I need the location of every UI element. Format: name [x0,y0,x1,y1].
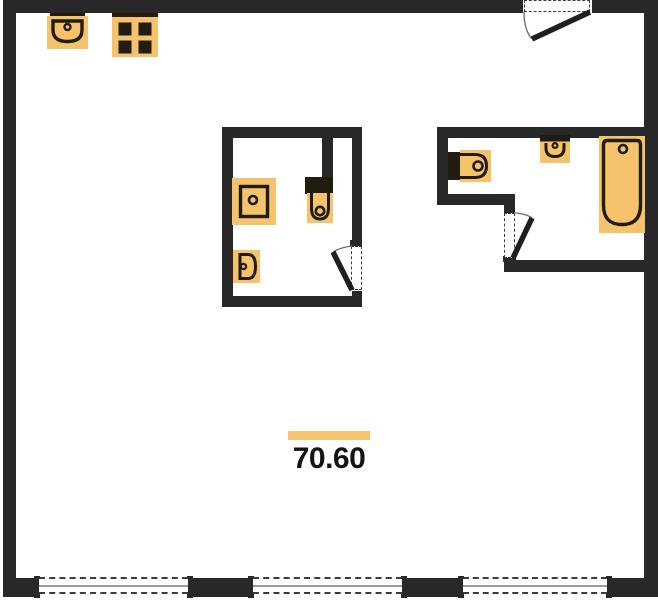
bath1-wall-top [222,127,362,138]
window-icon [253,577,402,594]
toilet-icon [460,150,491,182]
wall-bottom-pier-1 [188,578,253,597]
area-label: 70.60 [278,442,380,476]
floor-plan: 70.60 [0,0,658,600]
wall-bottom-pier-2 [402,578,463,597]
stove-icon [112,17,158,57]
window-glass-line [253,585,402,587]
bath2-wall-mid [437,194,515,205]
bathtub-icon [599,136,645,233]
wall-left [3,0,16,597]
window-glass-line [463,585,607,587]
toilet-icon [307,193,333,223]
bath1-partition [322,138,333,178]
bath1-wall-right-upper [352,127,362,240]
wall-basin-icon [233,250,260,283]
door-swing-icon [500,208,540,264]
wall-right [644,0,658,597]
door-swing-icon [518,0,598,48]
bath1-toilet-cistern [305,177,333,194]
bath1-wall-bottom [222,296,362,307]
door-swing-icon [325,240,365,296]
window-icon [463,577,607,594]
window-glass-line [39,585,188,587]
kitchen-sink-icon [47,16,88,49]
shower-tray-icon [232,178,276,225]
wall-top-left-segment [3,0,523,13]
wall-basin-icon [540,135,570,163]
area-accent-bar [288,431,370,440]
wall-bottom-segment-2 [607,578,658,597]
window-icon [39,577,188,594]
